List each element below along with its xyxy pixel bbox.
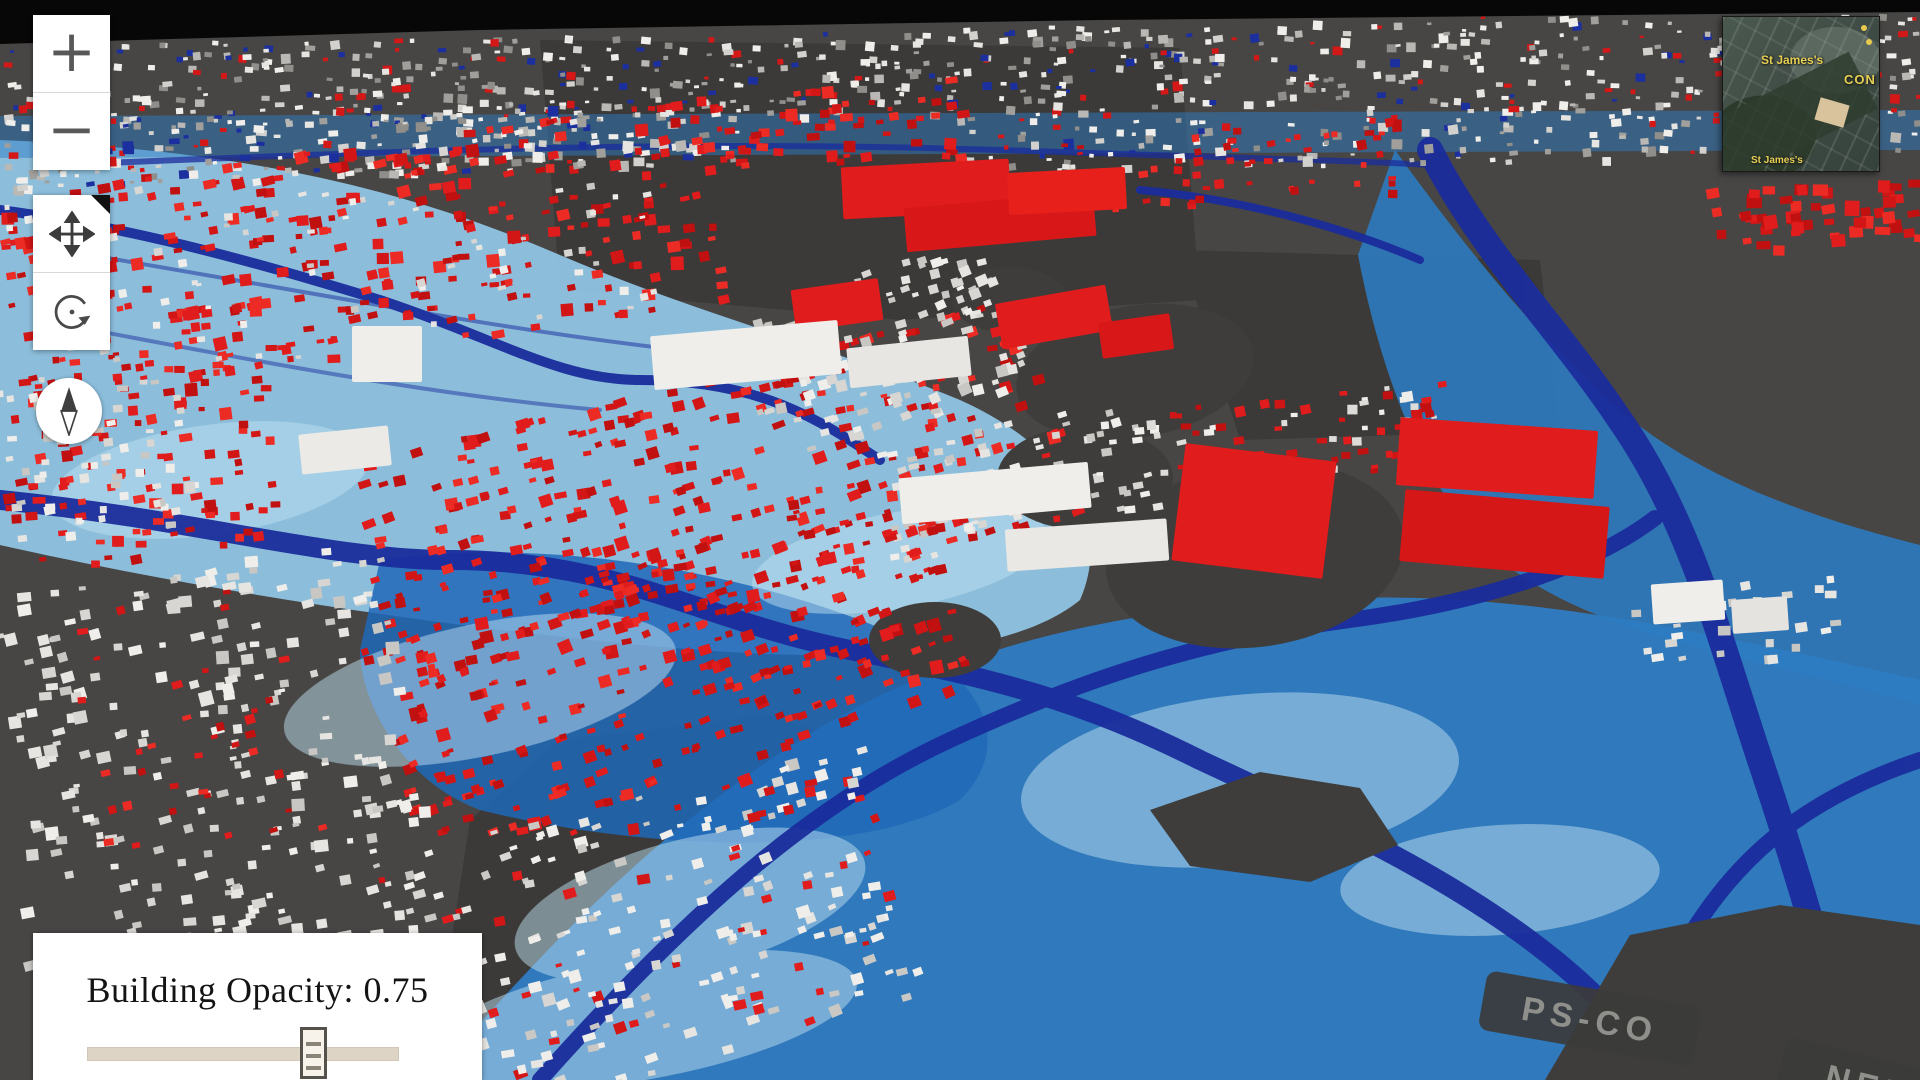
map-3d-scene[interactable]: PS-CO NER- (0, 0, 1920, 1080)
rotate-button[interactable] (33, 273, 110, 350)
opacity-value: 0.75 (363, 970, 428, 1010)
circular-arrow-icon (50, 290, 94, 334)
overview-inset-map[interactable]: St James's CON St James's (1722, 16, 1880, 172)
opacity-slider[interactable] (87, 1027, 397, 1079)
poi-marker-icon (1866, 39, 1872, 45)
zoom-out-button[interactable]: − (33, 93, 110, 170)
compass-button[interactable] (36, 378, 102, 444)
poi-marker-icon (1861, 25, 1867, 31)
opacity-label-text: Building Opacity: (87, 970, 354, 1010)
building-opacity-label: Building Opacity: 0.75 (33, 969, 482, 1011)
compass-needle-icon (56, 386, 82, 436)
corner-fold-icon (91, 195, 110, 214)
slider-grip-icon (306, 1042, 321, 1072)
building-opacity-panel: Building Opacity: 0.75 (33, 933, 482, 1080)
flood-map-app: PS-CO NER- + − (0, 0, 1920, 1080)
inset-place-label: St James's (1761, 53, 1823, 67)
inset-park-area (1722, 52, 1878, 172)
inset-place-label: CON (1844, 72, 1876, 87)
pan-rotate-panel (33, 195, 110, 350)
opacity-slider-thumb[interactable] (300, 1027, 327, 1079)
plus-icon: + (47, 22, 96, 80)
zoom-in-button[interactable]: + (33, 15, 110, 92)
zoom-control-panel: + − (33, 15, 110, 170)
four-way-arrows-icon (49, 211, 95, 257)
minus-icon: − (47, 100, 96, 158)
opacity-slider-track[interactable] (87, 1047, 399, 1061)
inset-place-label: St James's (1751, 155, 1803, 166)
pan-button[interactable] (33, 195, 110, 272)
